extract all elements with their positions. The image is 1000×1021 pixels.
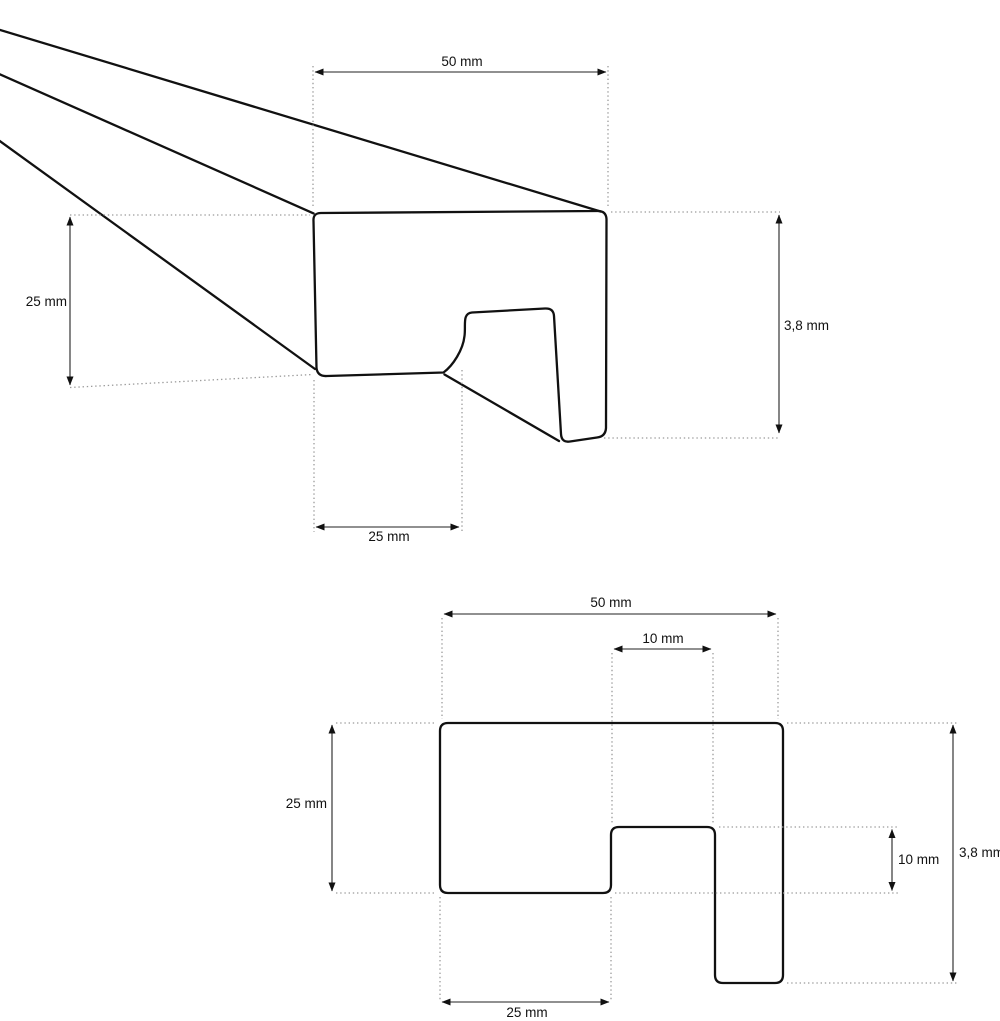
dim-label-section-width: 50 mm [590,595,631,610]
dim-label-perspective-width: 50 mm [441,54,482,69]
dim-label-section-notch-depth: 10 mm [898,852,939,867]
dim-label-perspective-bottom-width: 25 mm [368,529,409,544]
dim-label-section-notch-width: 10 mm [642,631,683,646]
technical-drawing: 50 mm 25 mm 3,8 mm 25 mm [0,0,1000,1021]
dim-label-section-bottom-width: 25 mm [506,1005,547,1020]
dim-label-perspective-total-height: 3,8 mm [784,318,829,333]
dim-label-perspective-height: 25 mm [26,294,67,309]
canvas-background [0,0,1000,1021]
dim-label-section-total-height: 3,8 mm [959,845,1000,860]
dim-label-section-height: 25 mm [286,796,327,811]
